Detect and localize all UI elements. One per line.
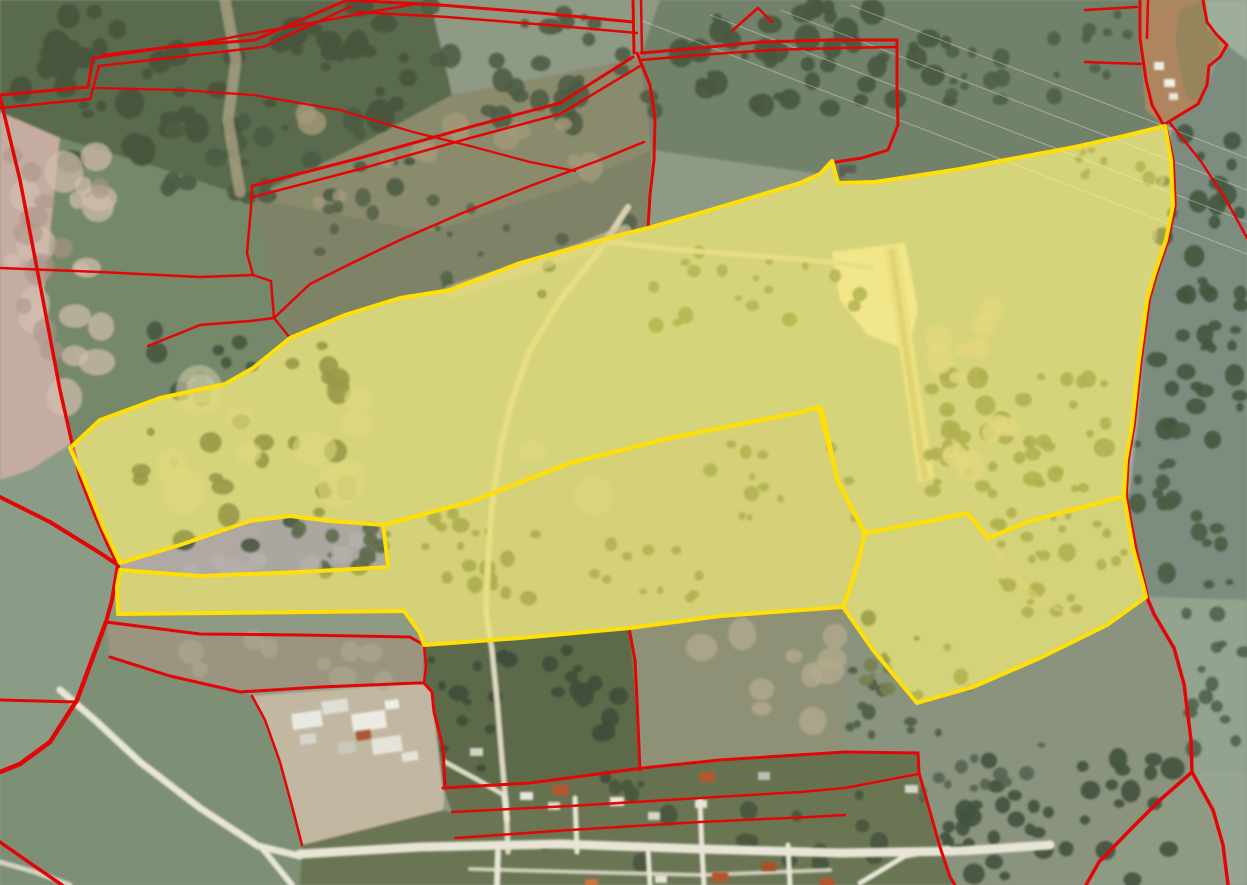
trees-corridor-blob [1230, 326, 1242, 334]
trees-corridor-2-blob [1214, 536, 1228, 551]
trees-tl-2-blob [165, 122, 186, 139]
trees-topright-2-blob [994, 69, 1011, 87]
trees-tl-1-blob [87, 5, 103, 19]
building-roof-17 [712, 872, 728, 882]
trees-bottom-right-blob [1007, 811, 1025, 827]
trees-corridor-blob [1227, 340, 1237, 351]
trees-corridor-blob [1236, 403, 1244, 412]
trees-bottom-right-blob [1105, 779, 1118, 790]
trees-midleft-blob [215, 345, 225, 353]
trees-topright-blob [801, 57, 815, 72]
trees-east-blob [1209, 606, 1225, 622]
trees-tl-1-blob [82, 110, 94, 119]
trees-topmid-blob [492, 68, 513, 93]
trees-topright-blob [763, 51, 778, 68]
village-road-3 [788, 845, 790, 885]
trees-corridor-blob [1208, 320, 1222, 331]
trees-bottom-right-blob [1145, 753, 1163, 767]
trees-tl-2-blob [253, 126, 274, 147]
trees-corridor-blob [1209, 215, 1221, 229]
trees-topright-blob [921, 65, 945, 86]
trees-corridor-2-blob [1191, 523, 1208, 542]
trees-topright-blob [805, 72, 821, 90]
trees-south-1-blob [935, 729, 942, 737]
building-roof-19 [820, 878, 834, 885]
trees-tl-1-blob [334, 47, 347, 62]
trees-midleft-blob [221, 357, 232, 369]
trees-village-west-blob [542, 656, 558, 672]
trees-south-1-blob [904, 717, 917, 726]
trees-tl-1-blob [404, 157, 416, 165]
trees-village-west-blob [472, 661, 482, 672]
trees-bottom-right-blob [963, 863, 985, 884]
trees-corridor-blob [1186, 398, 1206, 414]
village-yards-blob [625, 786, 639, 803]
trees-bottom-right-blob [942, 821, 955, 833]
trees-tl-2-blob [301, 151, 321, 169]
trees-bottom-right-blob [1080, 815, 1090, 825]
trees-tl-1-blob [375, 86, 385, 96]
trees-band-blob [447, 231, 453, 237]
clearing-village-east-blob [799, 707, 826, 735]
building-roof-18 [762, 862, 776, 871]
trees-topright-blob [908, 41, 919, 53]
trees-tl-1-blob [320, 63, 331, 72]
trees-south-2-blob [955, 760, 968, 774]
trees-tl-2-blob [353, 127, 365, 140]
trees-south-1-blob [868, 730, 876, 739]
trees-topmid-blob [582, 33, 595, 47]
wedge-mottle-blob [349, 532, 363, 548]
trees-bottom-right-blob [1059, 841, 1074, 857]
nw-field-mottle-blob [178, 640, 204, 664]
trees-topright-blob [820, 100, 840, 117]
trees-corridor-blob [1147, 352, 1168, 368]
trees-topright-2-blob [961, 73, 968, 80]
trees-bottom-right-blob [985, 854, 1003, 869]
trees-topright-2-blob [1053, 72, 1060, 79]
trees-band-blob [556, 233, 569, 245]
wedge-mottle-blob [331, 546, 353, 563]
trees-corridor-blob [1189, 190, 1209, 213]
trees-village-west-blob [551, 687, 565, 698]
pink-mottle-1-blob [62, 345, 88, 366]
trees-bottom-right-blob [1115, 764, 1131, 776]
trees-wedge-blob [363, 533, 378, 547]
trees-village-west-blob [456, 716, 468, 727]
red-parcel-boundary-31 [0, 700, 77, 702]
trees-lobe-2-blob [880, 682, 896, 695]
trees-south-2-blob [970, 754, 979, 764]
trees-bottom-right-blob [958, 811, 970, 820]
building-roof-24 [1154, 62, 1164, 70]
building-roof-5 [355, 729, 371, 741]
clearing-village-east-blob [752, 702, 772, 716]
trees-midleft-blob [147, 321, 164, 340]
trees-south-2-blob [1019, 766, 1034, 780]
village-yards-blob [855, 819, 869, 832]
trees-corridor-blob [1176, 329, 1191, 342]
clearing-village-east-blob [801, 663, 822, 688]
trees-village-west-blob [485, 724, 496, 734]
clearing-village-east-blob [818, 647, 847, 671]
clearing-village-east-blob [749, 678, 774, 700]
trees-topright-2-blob [1113, 10, 1122, 20]
trees-topright-2-blob [960, 83, 969, 91]
trees-corridor-2-blob [1134, 474, 1143, 485]
trees-village-west-blob [569, 681, 586, 700]
trees-topright-2-blob [1047, 31, 1061, 46]
nw-field-mottle-blob [316, 657, 331, 670]
trees-topright-blob [706, 70, 727, 95]
trees-tl-2-blob [281, 124, 290, 130]
trees-topright-2-blob [993, 48, 1010, 68]
trees-topright-blob [749, 95, 764, 113]
trees-lobe-2-blob [864, 658, 877, 672]
trees-bottom-right-blob [987, 830, 1000, 845]
trees-village-west-blob [561, 645, 573, 657]
trees-south-2-blob [1038, 742, 1046, 748]
building-roof-23 [470, 748, 483, 756]
trees-tl-1-blob [96, 101, 107, 112]
trees-topright-blob [824, 9, 837, 24]
building-roof-26 [1169, 93, 1178, 100]
trees-corridor-blob [1184, 245, 1205, 268]
trees-topright-2-blob [1102, 28, 1112, 36]
trees-tl-1-blob [361, 45, 377, 57]
trees-bottom-right-blob [1031, 827, 1046, 838]
building-roof-16 [758, 772, 770, 780]
village-yards-blob [740, 801, 758, 820]
nw-field-mottle-blob [374, 671, 393, 691]
trees-bottom-right-blob [1077, 761, 1089, 772]
trees-topmid-blob [640, 90, 659, 104]
trees-tl-1-blob [399, 69, 418, 86]
nw-field-mottle-blob [358, 644, 382, 662]
trees-east-blob [1211, 642, 1223, 653]
trees-topright-blob [845, 35, 862, 53]
trees-village-west-blob [499, 649, 509, 660]
clearing-village-east-blob [823, 624, 848, 649]
pink-mottle-2-blob [34, 194, 55, 209]
trees-tl-1-blob [78, 100, 89, 109]
trees-tl-1-blob [57, 4, 80, 29]
trees-village-west-blob [476, 764, 486, 772]
trees-bottom-right-blob [1028, 800, 1040, 814]
nw-field-mottle-blob [192, 662, 208, 678]
trees-wedge-blob [325, 529, 339, 543]
trees-corridor-2-blob [1156, 474, 1171, 490]
trees-corridor-2-blob [1159, 496, 1178, 510]
trees-corridor-2-blob [1190, 510, 1203, 522]
trees-east-blob [1181, 608, 1192, 620]
trees-topmid-blob [531, 56, 551, 72]
red-parcel-boundary-34 [918, 753, 919, 773]
trees-tl-1-blob [291, 43, 304, 56]
trees-topright-blob [773, 92, 784, 100]
trees-corridor-blob [1204, 431, 1221, 449]
trees-south-2-blob [933, 772, 945, 783]
trees-corridor-blob [1200, 344, 1210, 351]
red-parcel-boundary-5 [633, 0, 634, 53]
village-yards-blob [855, 790, 864, 800]
trees-tl-1-blob [316, 31, 342, 50]
trees-midleft-blob [241, 538, 260, 552]
trees-tl-2-blob [386, 178, 404, 196]
trees-corridor-2-blob [1158, 463, 1167, 470]
trees-tl-1-blob [142, 68, 153, 80]
pink-mottle-1-blob [81, 143, 112, 171]
trees-wedge-blob [292, 521, 306, 536]
trees-south-2-blob [1001, 777, 1012, 787]
trees-corridor-blob [1190, 381, 1203, 391]
trees-bottom-right-blob [1008, 790, 1022, 801]
building-roof-13 [648, 812, 660, 820]
village-road-5 [648, 850, 650, 885]
trees-topright-blob [867, 56, 886, 78]
trees-topmid-blob [511, 89, 528, 103]
trees-tl-1-blob [371, 14, 398, 33]
wedge-mottle-blob [248, 553, 267, 568]
trees-bottom-right-blob [1081, 781, 1101, 800]
pink-mottle-1-blob [69, 191, 86, 209]
trees-topright-blob [862, 0, 871, 10]
trees-bottom-right-blob [1043, 806, 1054, 818]
pink-mottle-1-blob [59, 304, 91, 328]
trees-tl-1-blob [115, 88, 144, 119]
trees-village-west-blob [573, 665, 583, 673]
trees-topmid-blob [488, 53, 505, 69]
trees-topmid-blob [574, 75, 585, 87]
red-parcel-boundary-41 [251, 186, 252, 208]
trees-topright-blob [884, 90, 906, 109]
dirt-band-blob [313, 196, 325, 209]
trees-corridor-blob [1234, 286, 1247, 302]
trees-village-west-blob [601, 708, 619, 728]
trees-band-blob [477, 251, 484, 256]
pink-mottle-1-blob [88, 313, 114, 341]
trees-tl-1-blob [173, 86, 186, 97]
trees-tl-1-blob [389, 96, 405, 111]
trees-east-blob [1183, 707, 1198, 718]
building-roof-9 [553, 785, 569, 795]
red-parcel-boundary-6 [641, 0, 642, 53]
trees-bottom-right-blob [1121, 780, 1141, 803]
pink-mottle-2-blob [22, 162, 42, 183]
trees-band-blob [427, 194, 440, 206]
trees-lobe-2-blob [859, 675, 873, 686]
village-road-6 [702, 852, 704, 885]
trees-band-blob [440, 271, 453, 285]
nw-field-mottle-blob [260, 638, 278, 659]
trees-corridor-blob [1226, 159, 1237, 171]
trees-tl-1-blob [10, 76, 33, 103]
trees-midleft-blob [232, 335, 248, 350]
trees-tl-2-blob [205, 148, 227, 167]
trees-south-1-blob [848, 667, 858, 674]
building-roof-28 [845, 173, 857, 181]
trees-corridor-2-blob [1203, 580, 1214, 589]
trees-village-west-blob [609, 687, 629, 705]
trees-topright-2-blob [946, 46, 960, 58]
village-west-field [424, 628, 640, 788]
trees-south-2-blob [944, 780, 952, 789]
trees-south-1-blob [861, 704, 875, 720]
building-roof-22 [905, 785, 918, 793]
trees-corridor-blob [1225, 364, 1245, 386]
clearing-village-east-blob [786, 650, 803, 663]
trees-east-blob [1211, 700, 1223, 712]
trees-tl-1-blob [108, 20, 126, 39]
building-roof-15 [695, 800, 707, 808]
pink-mottle-2-blob [51, 238, 72, 259]
village-yards-blob [637, 781, 645, 788]
pink-mottle-2-blob [16, 298, 32, 314]
trees-band-blob [333, 200, 344, 213]
trees-corridor-2-blob [1171, 422, 1190, 438]
trees-topright-2-blob [1102, 70, 1111, 80]
trees-village-west-blob [448, 685, 469, 701]
trees-bottom-right-blob [995, 797, 1011, 814]
village-yards-blob [609, 780, 622, 795]
trees-east-blob [1198, 666, 1206, 673]
pink-mottle-1-blob [4, 253, 21, 266]
trees-band-blob [355, 188, 371, 207]
building-roof-21 [655, 875, 667, 883]
trees-east-blob [1230, 735, 1241, 747]
trees-tl-2-blob [237, 113, 251, 130]
trees-tl-1-blob [128, 135, 156, 166]
trees-topmid-blob [481, 105, 498, 117]
trees-bottom-right-blob [1144, 765, 1157, 780]
map-viewport[interactable] [0, 0, 1247, 885]
trees-village-west-blob [438, 681, 447, 691]
trees-band-blob [330, 224, 339, 235]
trees-east-blob [1205, 677, 1218, 692]
trees-bottom-right-blob [1114, 799, 1125, 808]
trees-tl-1-blob [399, 52, 410, 63]
trees-corridor-blob [1164, 381, 1179, 397]
trees-topright-2-blob [949, 78, 958, 85]
trees-tl-1-blob [148, 50, 171, 73]
wedge-mottle-blob [210, 552, 225, 569]
trees-corridor-blob [1177, 364, 1196, 380]
trees-bottom-right-blob [1160, 757, 1184, 780]
trees-bottom-right-blob [940, 832, 951, 842]
trees-topright-blob [791, 4, 816, 22]
trees-topright-blob [758, 15, 783, 33]
trees-south-2-blob [980, 778, 991, 790]
trees-topright-blob [854, 94, 869, 106]
trees-east-blob [1198, 690, 1213, 705]
trees-east-blob [1220, 715, 1231, 724]
pink-mottle-1-blob [73, 263, 90, 275]
trees-band-blob [314, 247, 326, 256]
trees-corridor-2-blob [1209, 523, 1224, 534]
trees-topright-2-blob [945, 88, 958, 100]
pink-mottle-2-blob [91, 178, 109, 199]
trees-corridor-blob [1199, 282, 1213, 298]
trees-corridor-blob [1223, 132, 1241, 150]
trees-band-blob [502, 224, 510, 232]
trees-bottom-right-blob [999, 871, 1010, 880]
trees-corridor-2-blob [1157, 562, 1176, 584]
map-canvas[interactable] [0, 0, 1247, 885]
trees-corridor-2-blob [1129, 493, 1147, 513]
trees-band-blob [366, 205, 379, 220]
trees-village-west-blob [427, 656, 436, 663]
trees-south-1-blob [907, 726, 916, 733]
trees-topright-2-blob [1046, 88, 1062, 105]
clearing-village-east-blob [686, 634, 717, 661]
clearing-village-east-blob [728, 618, 756, 651]
nw-field-mottle-blob [341, 641, 359, 662]
red-parcel-boundary-13 [1147, 0, 1148, 38]
trees-tl-1-blob [50, 54, 77, 81]
trees-east-blob [1186, 740, 1202, 758]
trees-tl-2-blob [160, 179, 175, 196]
trees-topright-2-blob [992, 94, 1008, 105]
village-yards-blob [791, 810, 802, 822]
trees-corridor-blob [1176, 288, 1192, 301]
trees-bottom-right-blob [981, 752, 998, 768]
building-roof-14 [700, 772, 715, 782]
trees-corridor-2-blob [1225, 579, 1233, 585]
trees-topmid-blob [440, 44, 462, 69]
trees-topright-2-blob [1089, 64, 1101, 73]
building-roof-10 [520, 792, 533, 800]
trees-bottom-right-blob [1159, 841, 1178, 857]
building-roof-20 [585, 879, 598, 885]
dirt-band-blob [555, 118, 572, 131]
trees-south-2-blob [969, 785, 978, 792]
trees-topright-2-blob [1081, 33, 1091, 44]
building-roof-25 [1164, 79, 1175, 87]
trees-south-1-blob [845, 722, 855, 731]
trees-topright-2-blob [1122, 30, 1133, 40]
